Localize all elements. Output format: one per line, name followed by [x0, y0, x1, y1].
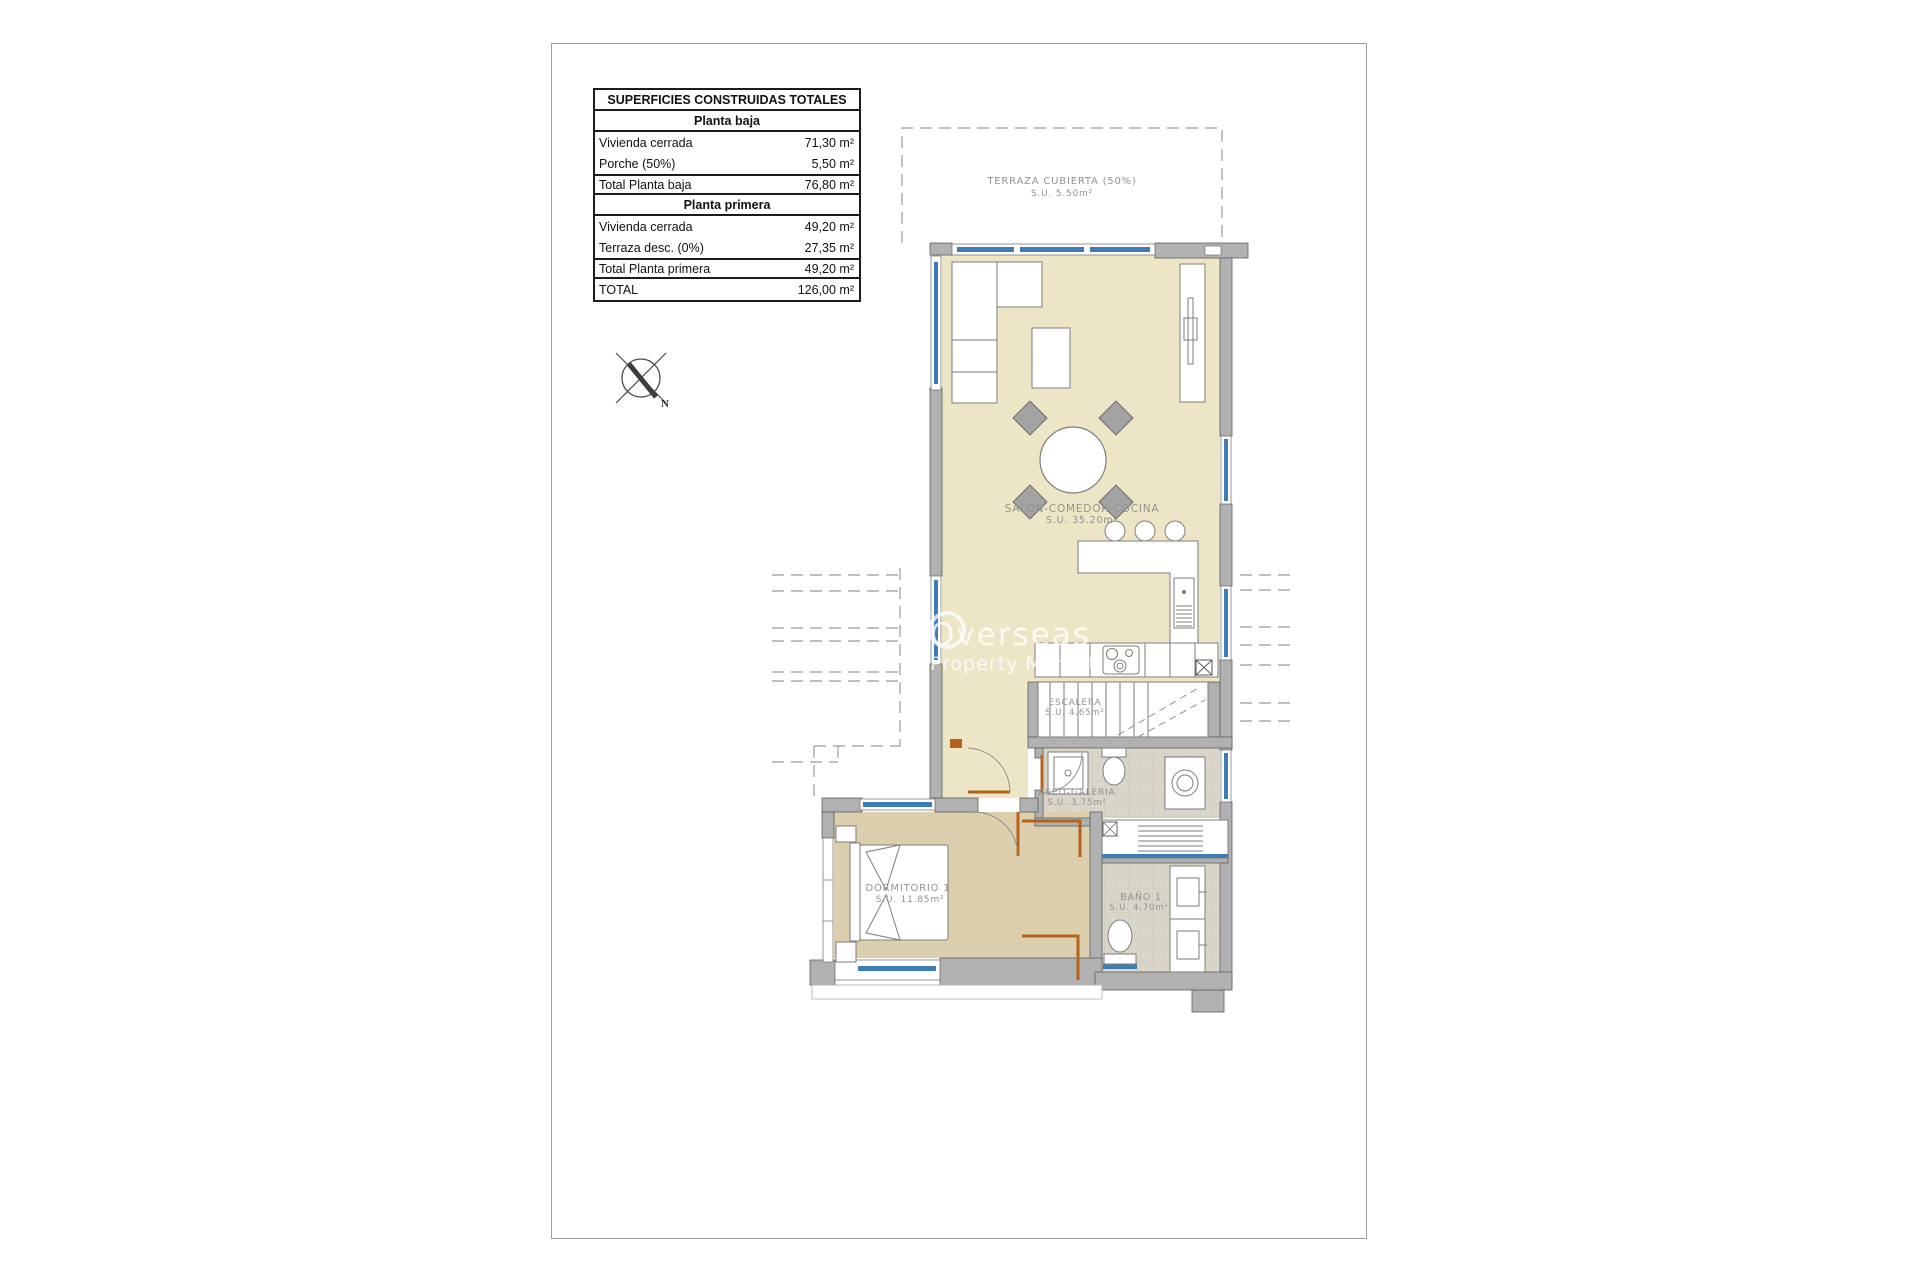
table-row-total: Total Planta baja 76,80 m²	[595, 174, 859, 195]
duct-symbol	[1196, 660, 1212, 675]
door-hinge-block	[950, 739, 962, 748]
headboard	[850, 843, 860, 941]
table-title: SUPERFICIES CONSTRUIDAS TOTALES	[595, 90, 859, 111]
compass-north-label: N	[661, 398, 669, 410]
dining-table	[1040, 427, 1106, 493]
compass-icon: N	[616, 353, 669, 410]
table-row-grand-total: TOTAL 126,00 m²	[595, 279, 859, 300]
table-row-total: Total Planta primera 49,20 m²	[595, 258, 859, 279]
salon-area: S.U. 35.20m²	[1046, 515, 1118, 526]
table-row: Vivienda cerrada 49,20 m²	[595, 216, 859, 237]
vanity-sinks	[1170, 866, 1207, 972]
table-section-header: Planta primera	[595, 195, 859, 216]
bano-area: S.U. 4.70m²	[1109, 903, 1168, 913]
boundary-dashes-right	[1240, 575, 1292, 721]
bano-label: BAÑO 1	[1120, 892, 1161, 903]
watermark-tagline: Property Market	[930, 653, 1097, 675]
areas-table: SUPERFICIES CONSTRUIDAS TOTALES Planta b…	[593, 88, 861, 302]
aseo-label: ASEO-GALERIA	[1039, 788, 1116, 798]
coffee-table	[1032, 328, 1070, 388]
toilet	[1103, 757, 1125, 785]
watermark-brand: Overseas	[930, 617, 1091, 653]
dormitorio-label: DORMITORIO 1	[866, 883, 951, 894]
page: { "colors": { "wall-color": "#b1b1b1", "…	[0, 0, 1920, 1280]
washing-machine	[1165, 757, 1205, 809]
table-row: Porche (50%) 5,50 m²	[595, 153, 859, 174]
dormitorio-area: S.U. 11.85m²	[876, 895, 945, 905]
boundary-dashes-left	[772, 568, 900, 798]
terraza-label: TERRAZA CUBIERTA (50%)	[986, 176, 1136, 187]
compass-needle	[629, 364, 656, 397]
table-section-header: Planta baja	[595, 111, 859, 132]
nightstand	[836, 826, 856, 842]
nightstand	[836, 942, 856, 962]
toilet-tank	[1102, 748, 1126, 757]
aseo-area: S.U. 3.75m²	[1047, 798, 1106, 808]
escalera-label: ESCALERA	[1049, 698, 1102, 708]
escalera-area: S.U. 4.65m²	[1045, 708, 1104, 718]
table-row: Terraza desc. (0%) 27,35 m²	[595, 237, 859, 258]
toilet	[1108, 920, 1132, 952]
stool	[1135, 521, 1155, 541]
stool	[1165, 521, 1185, 541]
table-row: Vivienda cerrada 71,30 m²	[595, 132, 859, 153]
galeria-counter	[1102, 820, 1228, 858]
salon-label: SALÓN-COMEDOR-COCINA	[1005, 502, 1160, 515]
exterior-step	[812, 985, 1102, 999]
terraza-area: S.U. 5.50m²	[1031, 189, 1093, 199]
watermark: Overseas Property Market	[930, 613, 1097, 675]
